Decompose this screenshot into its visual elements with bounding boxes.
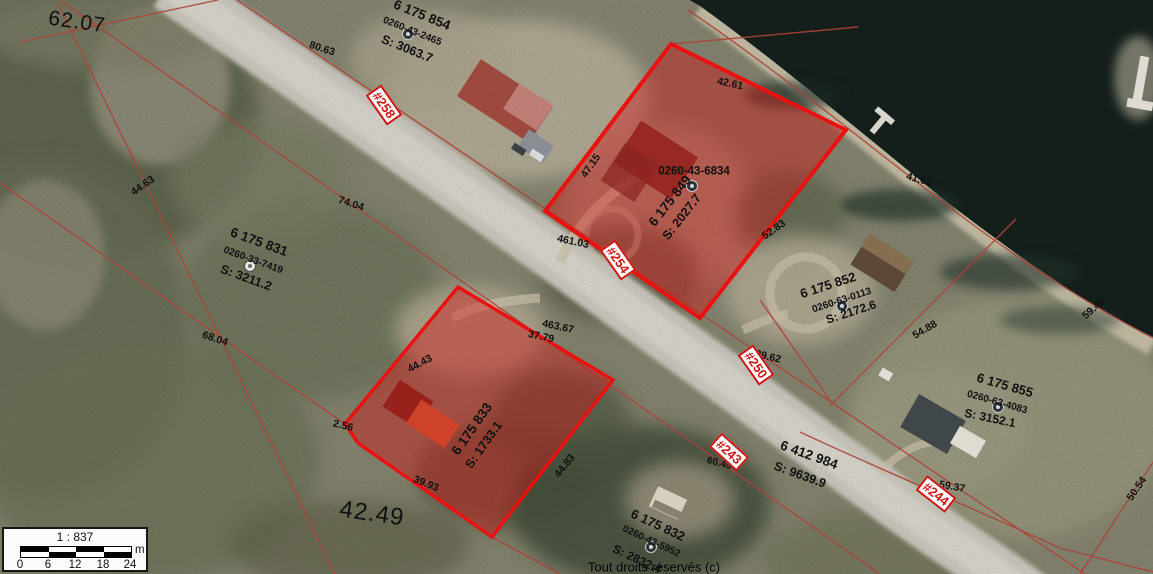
scale-tick-24: 24 [124,559,137,571]
aerial-map-svg [0,0,1153,574]
scale-unit: m [135,544,145,556]
matricule-6175849: 0260-43-6834 [658,166,730,178]
aerial-texture [0,0,1153,574]
scale-tick-0: 0 [17,559,23,571]
copyright-text: Tout droits réservés (c) [588,560,720,574]
scale-tick-12: 12 [69,559,82,571]
scale-bar-segment [104,552,132,557]
scale-bar-segment [21,552,49,557]
scale-tick-18: 18 [97,559,110,571]
scale-bar: 1 : 837 m 0 6 12 18 24 [2,527,148,572]
scale-ratio: 1 : 837 [4,530,146,544]
map-canvas[interactable]: 6 175 854 0260-43-2465 S: 3063.7 6 175 8… [0,0,1153,574]
scale-bar-segment [76,552,104,557]
scale-bar-graphic [20,546,132,558]
scale-tick-6: 6 [45,559,51,571]
scale-bar-segment [49,552,77,557]
